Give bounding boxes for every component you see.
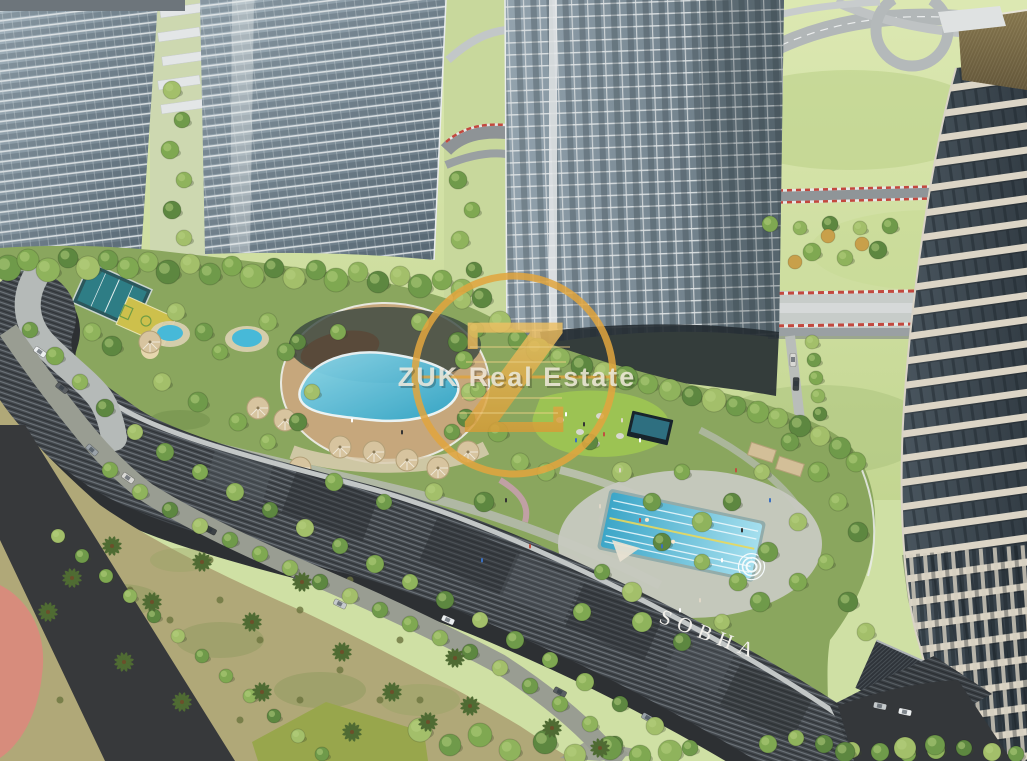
watermark-name: ZUK Real Estate: [398, 362, 637, 392]
tower-gap-left: [150, 0, 208, 260]
tower-left-b: [200, 0, 446, 260]
rendering-canvas: SOBHA Z ZUK Real Estate ZUK Real Estate: [0, 0, 1027, 761]
elevated-motorway: [768, 291, 914, 339]
